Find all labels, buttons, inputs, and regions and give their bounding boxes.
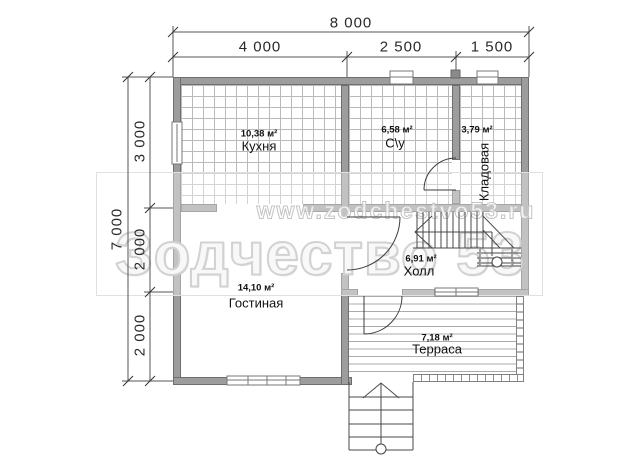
chimney-block xyxy=(451,70,460,78)
doors xyxy=(347,158,456,334)
terrace-name-label: Терраса xyxy=(412,342,462,357)
storage-area-label: 3,79 м² xyxy=(461,125,492,136)
kitchen-name-label: Кухня xyxy=(242,139,277,154)
living-name-label: Гостиная xyxy=(229,296,284,311)
dim-left-segment-3-label: 2 000 xyxy=(132,314,149,357)
door-bathroom-storage xyxy=(424,158,456,190)
door-hall-terrace xyxy=(364,296,402,334)
living-area-label: 14,10 м² xyxy=(238,283,275,294)
door-living-hall xyxy=(347,217,400,270)
dim-top-segment-1-label: 4 000 xyxy=(239,39,282,56)
dim-top-segment-2-label: 2 500 xyxy=(380,39,423,56)
bathroom-area-label: 6,58 м² xyxy=(381,125,412,136)
dim-overall-height-label: 7 000 xyxy=(109,208,126,251)
dim-overall-width-label: 8 000 xyxy=(330,15,373,32)
hall-name-label: Холл xyxy=(404,264,435,279)
exterior-staircase xyxy=(349,382,413,454)
plan-linework xyxy=(0,0,640,470)
floor-plan: www.zodchestvo53.ru Зодчество 53 xyxy=(0,0,640,470)
dim-left-segment-2-label: 2 000 xyxy=(132,228,149,271)
entrance-arrow xyxy=(363,383,399,454)
dim-left-segment-1-label: 3 000 xyxy=(132,120,149,163)
storage-name-label: Кладовая xyxy=(477,143,492,201)
bathroom-name-label: С\у xyxy=(385,136,405,151)
dim-top-segment-3-label: 1 500 xyxy=(471,39,514,56)
